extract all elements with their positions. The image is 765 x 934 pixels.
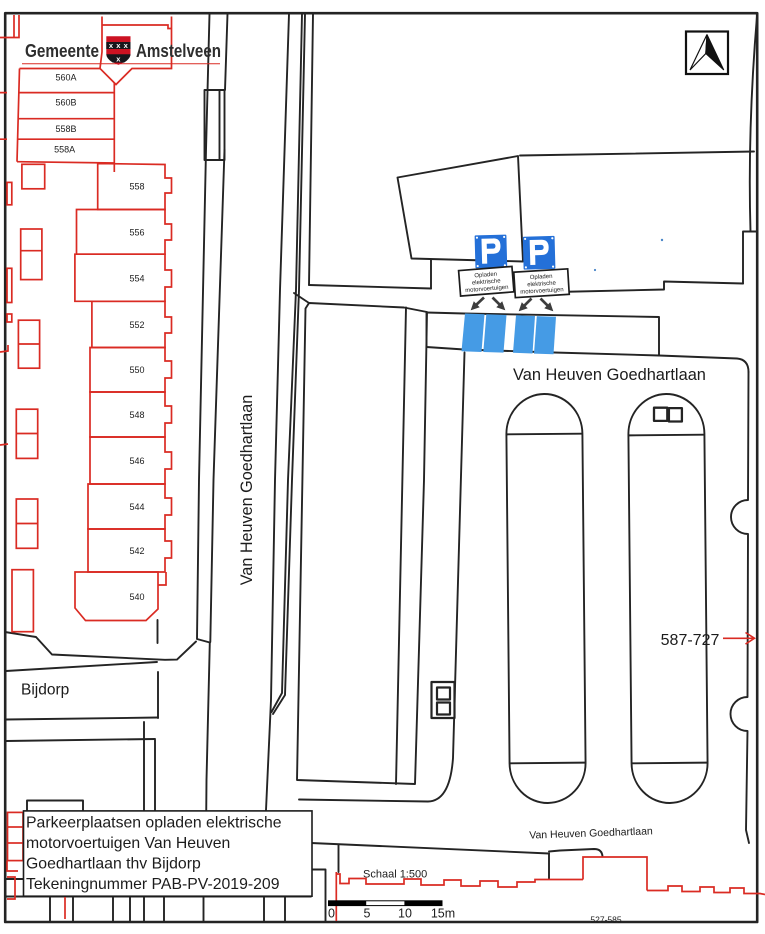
svg-text:558: 558 — [129, 182, 144, 192]
svg-text:548: 548 — [129, 410, 144, 420]
svg-text:558B: 558B — [55, 124, 76, 134]
svg-text:Van Heuven Goedhartlaan: Van Heuven Goedhartlaan — [513, 366, 706, 384]
svg-text:560A: 560A — [55, 73, 76, 83]
svg-text:587-727: 587-727 — [661, 632, 720, 649]
svg-text:560B: 560B — [55, 98, 76, 108]
svg-text:527-585: 527-585 — [590, 915, 621, 925]
svg-text:558A: 558A — [54, 145, 75, 155]
svg-text:Gemeente: Gemeente — [25, 41, 99, 61]
svg-text:Bijdorp: Bijdorp — [21, 682, 69, 699]
svg-text:Parkeerplaatsen opladen elektr: Parkeerplaatsen opladen elektrische — [26, 815, 282, 832]
svg-text:554: 554 — [129, 274, 144, 284]
svg-text:15m: 15m — [431, 907, 455, 921]
svg-text:Van Heuven Goedhartlaan: Van Heuven Goedhartlaan — [238, 395, 256, 586]
svg-text:556: 556 — [129, 228, 144, 238]
svg-text:motorvoertuigen Van Heuven: motorvoertuigen Van Heuven — [26, 835, 230, 852]
svg-text:Tekeningnummer PAB-PV-2019-209: Tekeningnummer PAB-PV-2019-209 — [26, 876, 280, 893]
svg-text:540: 540 — [129, 592, 144, 602]
svg-text:Goedhartlaan thv Bijdorp: Goedhartlaan thv Bijdorp — [26, 856, 201, 873]
svg-text:Schaal 1:500: Schaal 1:500 — [363, 869, 427, 881]
svg-text:544: 544 — [129, 502, 144, 512]
svg-text:550: 550 — [129, 365, 144, 375]
svg-text:0: 0 — [328, 907, 335, 921]
svg-text:5: 5 — [364, 907, 371, 921]
svg-text:546: 546 — [129, 456, 144, 466]
svg-text:10: 10 — [398, 907, 412, 921]
svg-text:Amstelveen: Amstelveen — [136, 41, 221, 61]
svg-text:552: 552 — [129, 320, 144, 330]
svg-text:542: 542 — [129, 546, 144, 556]
